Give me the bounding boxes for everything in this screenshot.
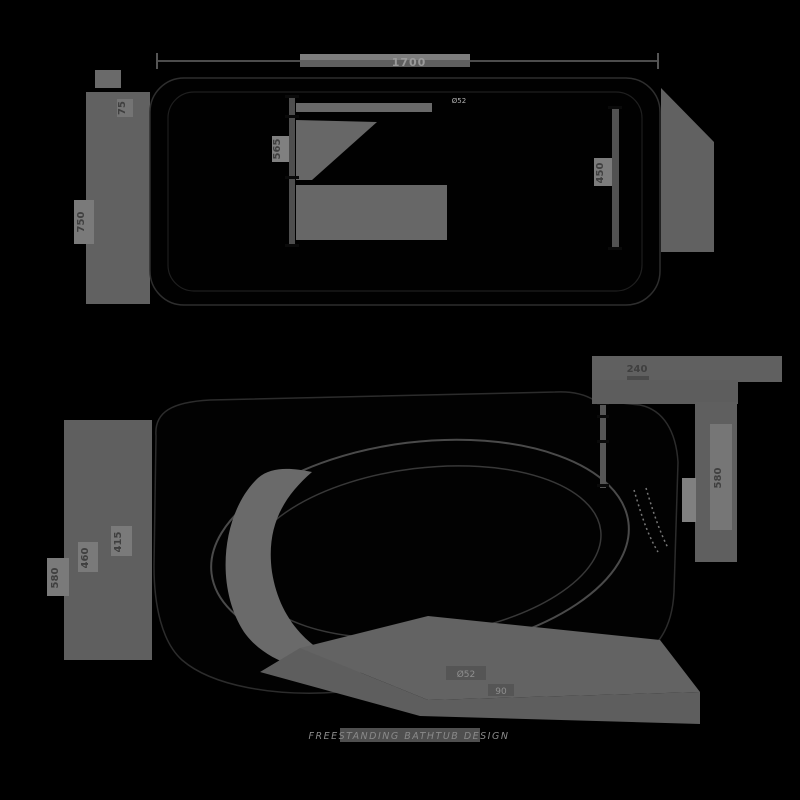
plan-view: 1700 750 75 565 Ø52 450 bbox=[74, 53, 714, 305]
inner-right-dimension-label: 450 bbox=[595, 163, 606, 184]
top-right-dim-band-lower bbox=[592, 380, 738, 404]
inner-width-tick-mid bbox=[285, 176, 299, 179]
deck-tick-2 bbox=[597, 415, 609, 418]
top-right-dim-band bbox=[592, 356, 782, 382]
height-outer-dimension-label: 580 bbox=[50, 568, 61, 589]
deck-tick-3 bbox=[597, 440, 609, 443]
length-label-backdrop-highlight bbox=[300, 54, 470, 60]
bathtub-technical-drawing: 1700 750 75 565 Ø52 450 bbox=[0, 0, 800, 800]
water-depth-dimension-label: 415 bbox=[113, 532, 124, 553]
perspective-shadow-left bbox=[64, 420, 152, 660]
inner-width-tick-bottom bbox=[285, 244, 299, 247]
rim-dimension-label: 75 bbox=[117, 101, 128, 115]
width-dimension-label: 750 bbox=[76, 212, 87, 233]
deck-dimension-line bbox=[600, 402, 606, 488]
deck-tick-4 bbox=[597, 484, 609, 487]
top-right-dim-underline bbox=[627, 376, 649, 380]
plan-interior-highlight-strip bbox=[296, 103, 432, 112]
inner-right-tick-top bbox=[608, 106, 622, 109]
inner-width-tick-top bbox=[285, 95, 299, 98]
top-right-dimension-label: 240 bbox=[627, 364, 648, 375]
inner-right-dimension-line bbox=[612, 106, 619, 250]
right-height-dimension-label: 580 bbox=[713, 468, 724, 489]
extension-mark-top-left bbox=[95, 70, 121, 88]
inner-width-dimension-label: 565 bbox=[272, 139, 283, 160]
inner-width-tick-upper bbox=[285, 115, 299, 118]
right-edge-highlight bbox=[682, 478, 696, 522]
drain-offset-label: 90 bbox=[495, 687, 507, 697]
plan-drain-label: Ø52 bbox=[452, 97, 466, 105]
length-dimension-label: 1700 bbox=[392, 56, 427, 69]
inner-right-tick-bottom bbox=[608, 247, 622, 250]
plan-shadow-left bbox=[86, 92, 150, 304]
watermark-text: FREESTANDING BATHTUB DESIGN bbox=[309, 731, 510, 742]
depth-dimension-label: 460 bbox=[80, 548, 91, 569]
plan-interior-highlight-block bbox=[296, 185, 447, 240]
drain-dimension-label: Ø52 bbox=[457, 669, 476, 680]
